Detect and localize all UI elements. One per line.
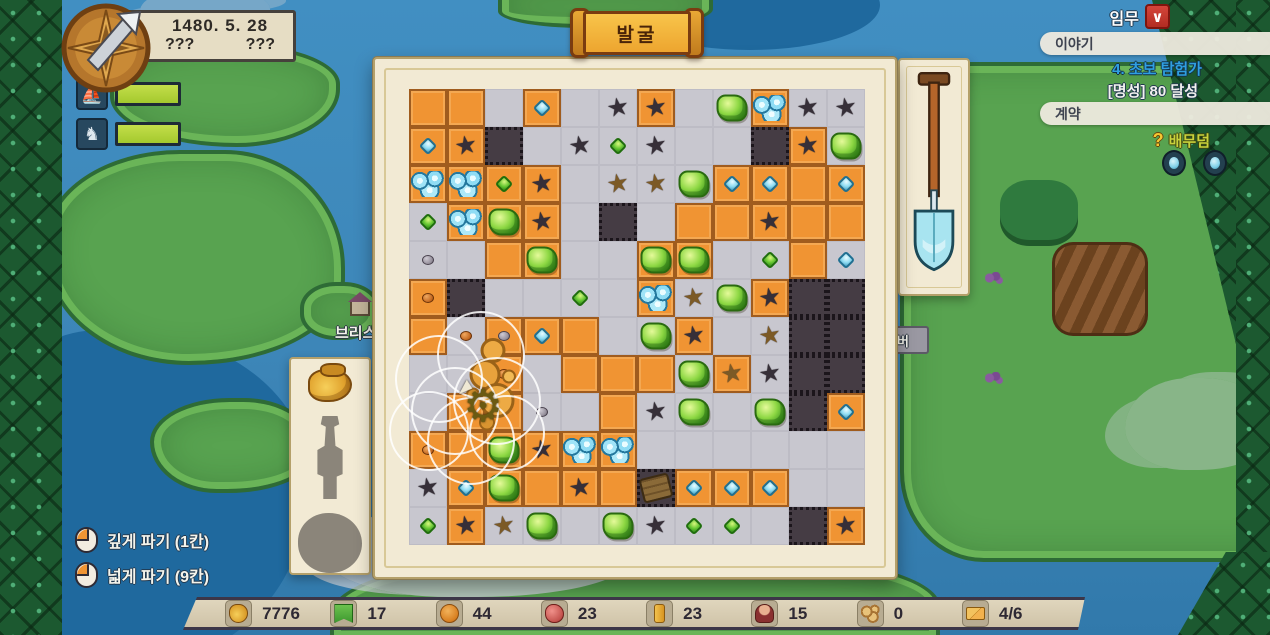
shovel-icon[interactable] bbox=[900, 60, 968, 285]
star-dark-icon: ★ bbox=[643, 512, 669, 541]
story-header[interactable]: 이야기 bbox=[1040, 32, 1270, 55]
game-date: 1480. 5. 28 bbox=[157, 16, 283, 36]
board-tile-orange-soil[interactable] bbox=[561, 355, 599, 393]
resource-bar: 7776174423231504/6 bbox=[183, 597, 1085, 630]
missions-label: 임무 bbox=[1110, 5, 1139, 29]
resource-item: 17 bbox=[330, 600, 411, 627]
gem-green-lg-icon bbox=[717, 95, 748, 122]
star-dark-icon: ★ bbox=[529, 208, 555, 237]
gem-green-lg-icon bbox=[679, 399, 710, 426]
board-tile-gray-dug[interactable] bbox=[561, 507, 599, 545]
gold-pouch-icon[interactable] bbox=[308, 369, 352, 402]
dig-hint-label: 깊게 파기 (1칸) bbox=[107, 528, 209, 552]
star-dark-icon: ★ bbox=[681, 322, 707, 351]
star-dark-icon: ★ bbox=[795, 132, 821, 161]
unknown-value-right: ??? bbox=[246, 36, 275, 54]
compass-icon[interactable] bbox=[60, 2, 152, 94]
excavation-board[interactable]: ★★★★★★★★★★★★★★★★★★★★★★★★★★★⚙ bbox=[409, 89, 865, 545]
resource-item: 23 bbox=[646, 600, 727, 627]
star-dark-icon: ★ bbox=[833, 512, 859, 541]
money-pouch-icon bbox=[225, 600, 252, 627]
board-tile-gray-dug[interactable] bbox=[523, 127, 561, 165]
gem-green-lg-icon bbox=[603, 513, 634, 540]
mail-icon bbox=[962, 600, 989, 627]
pebble-orange-icon bbox=[422, 293, 434, 303]
board-tile-orange-soil[interactable] bbox=[599, 355, 637, 393]
board-tile-gray-dug[interactable] bbox=[827, 431, 865, 469]
board-tile-dark-deep[interactable] bbox=[599, 203, 637, 241]
board-tile-gray-dug[interactable] bbox=[637, 431, 675, 469]
resource-item: 7776 bbox=[225, 600, 306, 627]
board-tile-gray-dug[interactable] bbox=[599, 241, 637, 279]
resource-value: 44 bbox=[473, 604, 517, 624]
board-tile-dark-deep[interactable] bbox=[789, 355, 827, 393]
gem-green-lg-icon bbox=[527, 513, 558, 540]
board-tile-orange-soil[interactable] bbox=[523, 469, 561, 507]
board-tile-dark-deep[interactable] bbox=[789, 393, 827, 431]
board-tile-orange-soil[interactable] bbox=[599, 469, 637, 507]
star-dark-icon: ★ bbox=[757, 208, 783, 237]
resource-value: 17 bbox=[367, 604, 411, 624]
star-brown-icon: ★ bbox=[605, 170, 631, 199]
question-icon: ? bbox=[1153, 130, 1164, 151]
forest-patch bbox=[1000, 180, 1078, 246]
lattice-curtain-right bbox=[1236, 0, 1270, 635]
gem-green-lg-icon bbox=[831, 133, 862, 160]
board-tile-orange-soil[interactable] bbox=[827, 203, 865, 241]
board-tile-dark-deep[interactable] bbox=[485, 127, 523, 165]
star-brown-icon: ★ bbox=[757, 322, 783, 351]
map-decor bbox=[985, 272, 1003, 284]
contract-header[interactable]: 계약 bbox=[1040, 102, 1270, 125]
star-dark-icon: ★ bbox=[795, 94, 821, 123]
mouse-left-click-icon bbox=[75, 562, 98, 588]
mountains bbox=[1052, 242, 1148, 336]
pebble-gray-icon bbox=[422, 255, 434, 265]
board-tile-orange-soil[interactable] bbox=[789, 165, 827, 203]
board-tile-gray-dug[interactable] bbox=[751, 431, 789, 469]
board-tile-gray-dug[interactable] bbox=[599, 279, 637, 317]
meat-icon bbox=[541, 600, 568, 627]
logs-icon bbox=[857, 600, 884, 627]
board-tile-gray-dug[interactable] bbox=[675, 127, 713, 165]
star-dark-icon: ★ bbox=[453, 132, 479, 161]
board-tile-orange-soil[interactable] bbox=[713, 203, 751, 241]
unknown-value-left: ??? bbox=[165, 36, 194, 54]
board-tile-dark-deep[interactable] bbox=[751, 127, 789, 165]
resource-value: 4/6 bbox=[999, 604, 1043, 624]
horse-icon: ♞ bbox=[76, 118, 108, 150]
board-tile-gray-dug[interactable] bbox=[675, 89, 713, 127]
gem-blue-icon bbox=[449, 171, 483, 197]
resource-value: 7776 bbox=[262, 604, 306, 624]
gold-bar-icon bbox=[646, 600, 673, 627]
map-label-beo[interactable]: 버 bbox=[897, 331, 909, 350]
board-tile-orange-soil[interactable] bbox=[675, 203, 713, 241]
star-dark-icon: ★ bbox=[643, 398, 669, 427]
gem-blue-icon bbox=[601, 437, 635, 463]
board-tile-gray-dug[interactable] bbox=[675, 431, 713, 469]
board-tile-gray-dug[interactable] bbox=[599, 317, 637, 355]
star-brown-icon: ★ bbox=[719, 360, 745, 389]
dig-hint-row: 깊게 파기 (1칸) bbox=[75, 527, 209, 553]
excavation-banner: 발굴 bbox=[570, 6, 704, 60]
resource-item: 44 bbox=[436, 600, 517, 627]
board-tile-gray-dug[interactable] bbox=[447, 241, 485, 279]
star-dark-icon: ★ bbox=[643, 132, 669, 161]
map-node-icon[interactable] bbox=[1203, 150, 1227, 176]
board-tile-orange-soil[interactable] bbox=[409, 89, 447, 127]
map-label-bris[interactable]: 브리스 bbox=[335, 322, 376, 343]
gem-green-lg-icon bbox=[489, 209, 520, 236]
gem-green-lg-icon bbox=[755, 399, 786, 426]
artifact-panel bbox=[289, 357, 371, 575]
gem-blue-icon bbox=[563, 437, 597, 463]
board-tile-gray-dug[interactable] bbox=[523, 279, 561, 317]
board-tile-gray-dug[interactable] bbox=[789, 431, 827, 469]
map-node-icon[interactable] bbox=[1162, 150, 1186, 176]
board-tile-dark-deep[interactable] bbox=[789, 507, 827, 545]
board-tile-gray-dug[interactable] bbox=[637, 203, 675, 241]
gem-blue-icon bbox=[449, 209, 483, 235]
star-brown-icon: ★ bbox=[643, 170, 669, 199]
board-tile-gray-dug[interactable] bbox=[713, 241, 751, 279]
board-tile-orange-soil[interactable] bbox=[599, 393, 637, 431]
resource-value: 15 bbox=[788, 604, 832, 624]
gem-blue-icon bbox=[753, 95, 787, 121]
island bbox=[45, 150, 345, 365]
board-tile-gray-dug[interactable] bbox=[789, 469, 827, 507]
dig-hints: 깊게 파기 (1칸)넓게 파기 (9칸) bbox=[75, 527, 209, 597]
resource-item: 0 bbox=[857, 600, 938, 627]
gem-green-lg-icon bbox=[527, 247, 558, 274]
resource-value: 23 bbox=[683, 604, 727, 624]
gem-blue-icon bbox=[411, 171, 445, 197]
mouse-left-click-icon bbox=[75, 527, 98, 553]
star-dark-icon: ★ bbox=[643, 94, 669, 123]
board-tile-dark-deep[interactable] bbox=[789, 279, 827, 317]
board-tile-gray-dug[interactable] bbox=[561, 89, 599, 127]
story-quest-title[interactable]: 4. 초보 탐험가 bbox=[1112, 58, 1202, 79]
board-tile-orange-soil[interactable] bbox=[447, 89, 485, 127]
star-dark-icon: ★ bbox=[833, 94, 859, 123]
board-tile-dark-deep[interactable] bbox=[789, 317, 827, 355]
board-tile-gray-dug[interactable] bbox=[713, 393, 751, 431]
resource-item: 4/6 bbox=[962, 600, 1043, 627]
person-icon bbox=[751, 600, 778, 627]
star-dark-icon: ★ bbox=[757, 284, 783, 313]
gem-green-lg-icon bbox=[679, 247, 710, 274]
gem-green-lg-icon bbox=[717, 285, 748, 312]
board-tile-orange-soil[interactable] bbox=[789, 203, 827, 241]
resource-item: 23 bbox=[541, 600, 622, 627]
excavation-board-frame: ★★★★★★★★★★★★★★★★★★★★★★★★★★★⚙ bbox=[373, 57, 897, 579]
round-silhouette-icon[interactable] bbox=[298, 513, 362, 573]
star-brown-icon: ★ bbox=[491, 512, 517, 541]
board-tile-orange-soil[interactable] bbox=[637, 355, 675, 393]
banner-title: 발굴 bbox=[583, 11, 691, 55]
gauge-bar[interactable] bbox=[115, 122, 181, 146]
board-tile-gray-dug[interactable] bbox=[713, 317, 751, 355]
board-tile-dark-deep[interactable] bbox=[827, 317, 865, 355]
gem-green-lg-icon bbox=[641, 323, 672, 350]
gem-green-lg-icon bbox=[641, 247, 672, 274]
board-tile-gray-dug[interactable] bbox=[561, 203, 599, 241]
board-tile-gray-dug[interactable] bbox=[713, 127, 751, 165]
lattice-curtain-left bbox=[0, 0, 62, 635]
board-tile-orange-soil[interactable] bbox=[561, 317, 599, 355]
star-brown-icon: ★ bbox=[681, 284, 707, 313]
board-tile-gray-dug[interactable] bbox=[751, 507, 789, 545]
board-tile-gray-dug[interactable] bbox=[561, 165, 599, 203]
board-tile-dark-deep[interactable] bbox=[827, 279, 865, 317]
gem-green-lg-icon bbox=[679, 171, 710, 198]
board-tile-gray-dug[interactable] bbox=[561, 393, 599, 431]
town-house-icon[interactable] bbox=[350, 300, 370, 316]
gem-blue-icon bbox=[639, 285, 673, 311]
board-tile-gray-dug[interactable] bbox=[827, 469, 865, 507]
gauge-row: ♞ bbox=[76, 118, 181, 150]
resource-item: 15 bbox=[751, 600, 832, 627]
star-dark-icon: ★ bbox=[605, 94, 631, 123]
missions-toggle-icon[interactable]: ∨ bbox=[1145, 4, 1170, 29]
resource-value: 23 bbox=[578, 604, 622, 624]
board-tile-gray-dug[interactable] bbox=[561, 241, 599, 279]
board-tile-dark-deep[interactable] bbox=[827, 355, 865, 393]
map-decor bbox=[985, 372, 1003, 384]
dig-hint-label: 넓게 파기 (9칸) bbox=[107, 563, 209, 587]
board-tile-orange-soil[interactable] bbox=[485, 241, 523, 279]
statue-silhouette-icon[interactable] bbox=[309, 416, 351, 499]
board-tile-gray-dug[interactable] bbox=[713, 431, 751, 469]
story-quest-goal: [명성] 80 달성 bbox=[1108, 80, 1198, 101]
tool-panel bbox=[898, 58, 970, 296]
board-tile-orange-soil[interactable] bbox=[789, 241, 827, 279]
star-dark-icon: ★ bbox=[529, 170, 555, 199]
gem-green-lg-icon bbox=[679, 361, 710, 388]
star-dark-icon: ★ bbox=[453, 512, 479, 541]
star-dark-icon: ★ bbox=[567, 132, 593, 161]
star-dark-icon: ★ bbox=[757, 360, 783, 389]
dig-hint-row: 넓게 파기 (9칸) bbox=[75, 562, 209, 588]
contract-hint-text[interactable]: 배무덤 bbox=[1169, 130, 1210, 151]
gauge-fill bbox=[118, 125, 178, 143]
game-screen: 브리스 버 1480. 5. 28 ??? ??? ⛵♞ 임무 ∨ 이야기 4.… bbox=[0, 0, 1270, 635]
flag-icon bbox=[330, 600, 357, 627]
bread-icon bbox=[436, 600, 463, 627]
star-dark-icon: ★ bbox=[567, 474, 593, 503]
board-tile-gray-dug[interactable] bbox=[485, 89, 523, 127]
resource-value: 0 bbox=[894, 604, 938, 624]
star-dark-icon: ★ bbox=[415, 474, 441, 503]
